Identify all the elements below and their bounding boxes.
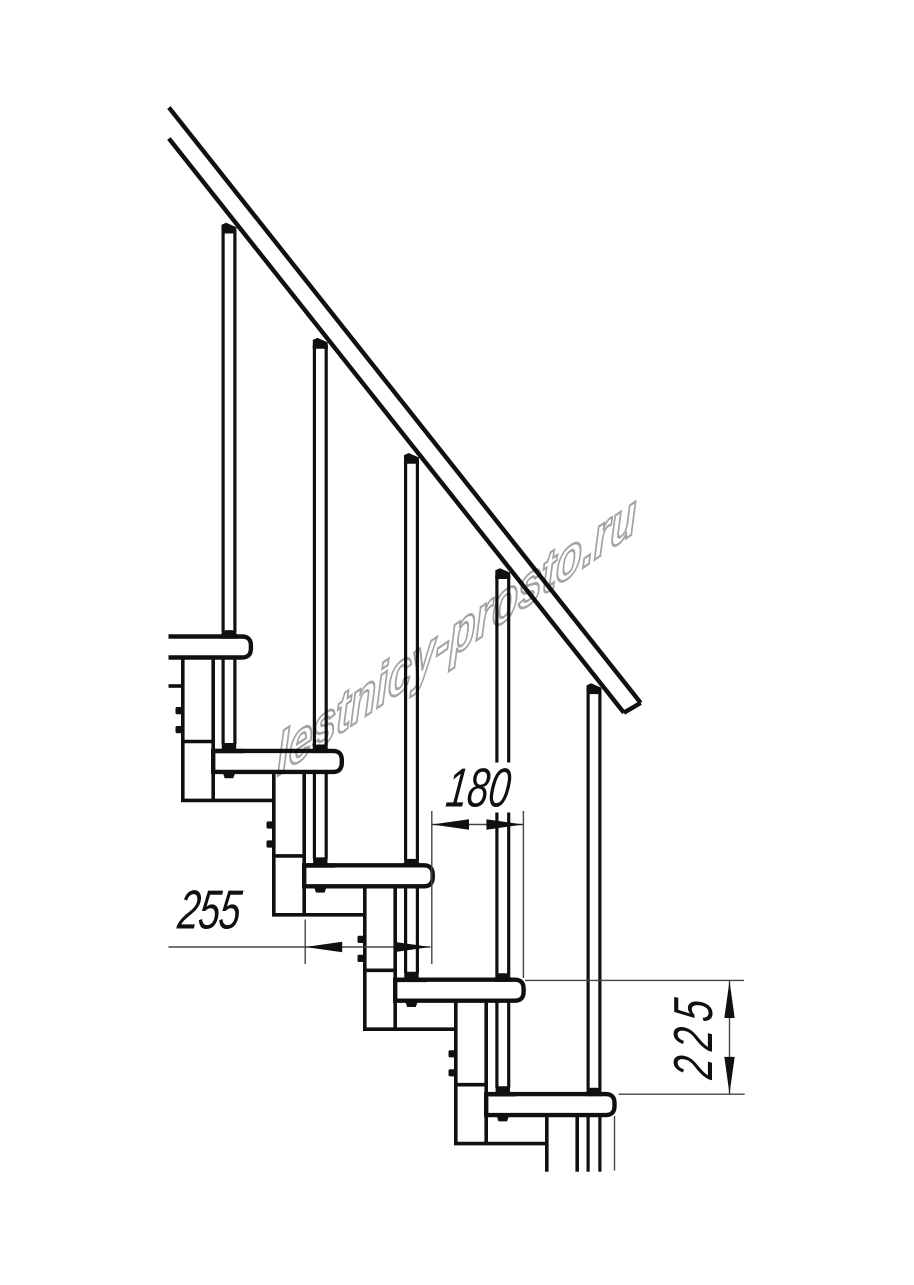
svg-text:255: 255 (174, 880, 245, 941)
svg-text:180: 180 (443, 758, 515, 819)
svg-text:225: 225 (664, 995, 725, 1082)
